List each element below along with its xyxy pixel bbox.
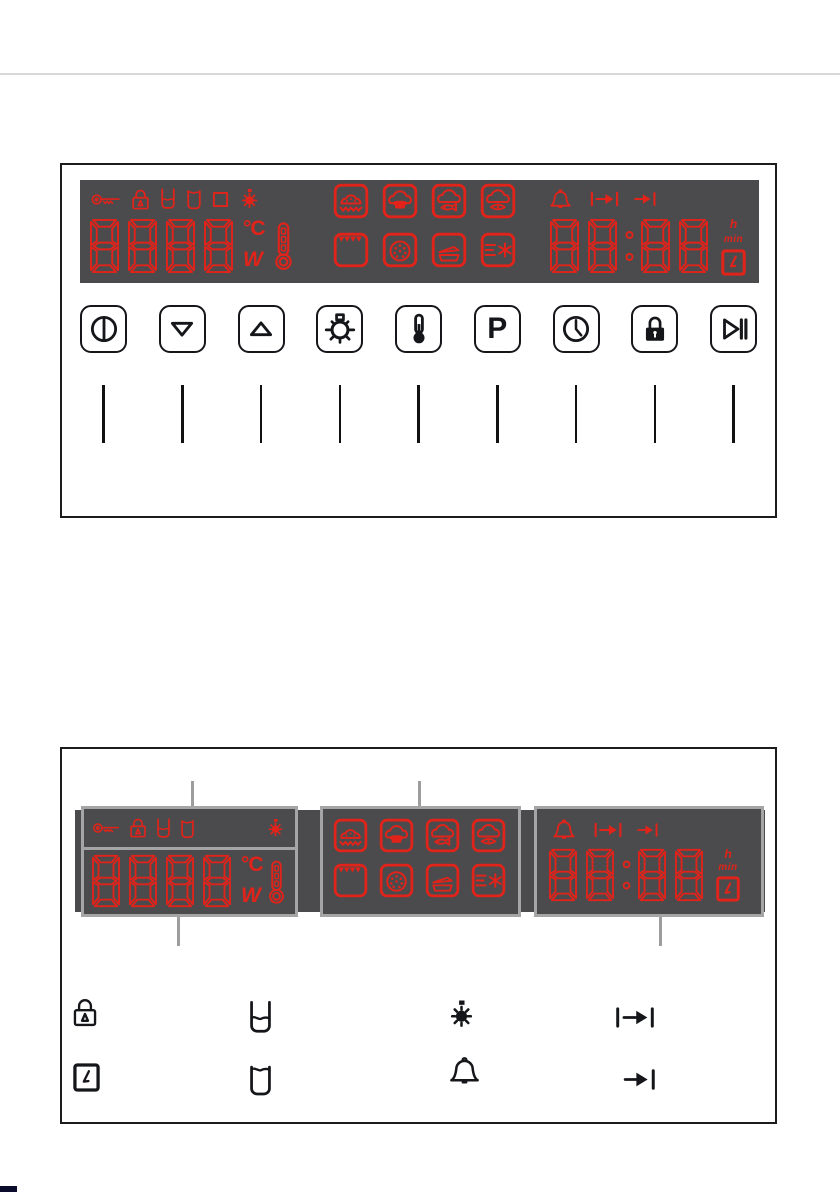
mode-icon-grill	[333, 232, 369, 268]
zone-box-time: h min	[534, 806, 764, 917]
control-button-row: P	[80, 305, 757, 353]
seven-segment-digit	[88, 218, 121, 274]
status-icon-row-left	[92, 813, 287, 843]
callout-line-top-left	[191, 781, 194, 807]
oven-light-icon	[266, 818, 285, 839]
temperature-units: °C W	[243, 218, 273, 270]
play-pause-icon	[717, 312, 751, 346]
status-icon-row-right	[548, 186, 756, 212]
triangle-up-icon	[244, 312, 278, 346]
seven-segment-digit	[201, 854, 233, 908]
mode-icon-pizza-fan	[379, 863, 414, 898]
seven-segment-digit	[164, 854, 196, 908]
mode-icon-pizza-fan	[382, 232, 418, 268]
time-digits: h min	[547, 848, 761, 902]
temperature-digits: °C W	[90, 854, 291, 910]
padlock-icon	[638, 312, 672, 346]
legend-container-full-icon	[248, 1063, 273, 1096]
page-corner-mark	[0, 1186, 17, 1192]
seven-segment-digit	[639, 218, 672, 274]
mode-icon-top-bottom-heat	[382, 183, 418, 219]
minute-label: min	[718, 863, 737, 873]
lamp-icon	[322, 311, 358, 347]
decrease-button	[159, 305, 206, 353]
legend-cooking-time-icon	[73, 1063, 100, 1092]
mode-icon-casserole	[425, 863, 460, 898]
temperature-digits: °C W	[88, 218, 310, 276]
legend-oven-light-icon	[447, 999, 476, 1031]
start-pause-button	[710, 305, 757, 353]
thermometer-button-icon	[402, 311, 436, 347]
zone-divider	[84, 847, 295, 850]
container-half-icon	[156, 818, 171, 839]
cooking-time-clock-icon	[716, 876, 740, 902]
hour-label: h	[730, 218, 737, 230]
thermometer-icon	[267, 854, 286, 910]
status-icon-row-left	[88, 186, 310, 212]
minute-minder-bell-icon	[551, 818, 577, 842]
on-off-button	[80, 305, 127, 353]
callout-line-bottom-left	[177, 917, 180, 946]
door-lock-icon	[131, 188, 150, 211]
zone-box-temperature: °C W	[81, 806, 298, 917]
oven-light-icon	[239, 188, 260, 211]
clock-icon	[559, 312, 593, 346]
temperature-units: °C W	[241, 854, 267, 906]
mode-icon-top-bottom-heat	[379, 818, 414, 853]
celsius-label: °C	[243, 218, 265, 239]
time-units: h min	[716, 848, 740, 902]
seven-segment-digit	[584, 848, 616, 902]
callout-line-top-middle	[418, 781, 421, 807]
key-icon	[90, 192, 121, 207]
seven-segment-digit	[548, 218, 581, 274]
program-button: P	[474, 305, 521, 353]
temperature-button	[395, 305, 442, 353]
status-icon-row-right	[551, 817, 761, 843]
hour-label: h	[724, 848, 731, 860]
legend-duration-icon	[614, 1005, 656, 1030]
mode-icon-defrost	[471, 863, 506, 898]
mode-icon-grid	[323, 809, 518, 898]
seven-segment-digit	[673, 848, 705, 902]
square-icon	[212, 191, 229, 208]
legend-door-lock-icon	[72, 997, 98, 1028]
seven-segment-digit	[90, 854, 122, 908]
display-zone-modes	[333, 183, 516, 268]
minute-label: min	[724, 235, 743, 245]
colon-separator	[621, 848, 632, 902]
seven-segment-digit	[202, 218, 235, 274]
legend-end-time-icon	[622, 1067, 657, 1092]
power-icon	[87, 312, 121, 346]
seven-segment-digit	[164, 218, 197, 274]
manual-page: { "page": { "kind": "oven control panel …	[0, 0, 840, 1192]
celsius-label: °C	[241, 854, 263, 875]
watt-label: W	[243, 249, 263, 270]
time-units: h min	[721, 218, 746, 276]
colon-separator	[624, 218, 635, 274]
mode-icon-casserole	[431, 232, 467, 268]
door-lock-icon	[129, 817, 147, 839]
container-half-icon	[160, 188, 176, 210]
program-letter: P	[487, 314, 507, 344]
duration-icon	[593, 821, 623, 839]
duration-icon	[589, 190, 620, 208]
display-zone-temperature: °C W	[88, 184, 310, 276]
mode-icon-fan-top-heat	[425, 818, 460, 853]
display-zone-time: h min	[548, 184, 756, 276]
figure-display-zones: °C W h	[60, 747, 777, 1124]
callout-line-bottom-right	[659, 917, 662, 946]
time-digits: h min	[548, 218, 756, 276]
watt-label: W	[241, 885, 261, 906]
figure-control-panel: °C W	[60, 163, 777, 518]
clock-button	[553, 305, 600, 353]
seven-segment-digit	[127, 854, 159, 908]
mode-icon-gentle-bake	[333, 818, 368, 853]
mode-icon-fan-bottom-heat	[471, 818, 506, 853]
minute-minder-bell-icon	[548, 188, 573, 211]
mode-icon-fan-bottom-heat	[480, 183, 516, 219]
seven-segment-digit	[547, 848, 579, 902]
thermometer-icon	[273, 216, 294, 276]
seven-segment-digit	[677, 218, 710, 274]
key-icon	[92, 821, 120, 835]
cooking-time-clock-icon	[721, 249, 746, 276]
seven-segment-digit	[126, 218, 159, 274]
zone-box-modes	[320, 806, 521, 917]
mode-icon-grill	[333, 863, 368, 898]
seven-segment-digit	[586, 218, 619, 274]
triangle-down-icon	[165, 312, 199, 346]
oven-light-button	[316, 305, 363, 353]
end-time-icon	[633, 190, 657, 208]
end-time-icon	[636, 821, 659, 839]
seven-segment-digit	[636, 848, 668, 902]
page-top-rule	[0, 73, 840, 75]
container-full-icon	[180, 818, 195, 839]
child-lock-button	[631, 305, 678, 353]
legend-minute-minder-icon	[447, 1055, 482, 1088]
led-display-panel: °C W	[80, 180, 759, 283]
legend-container-half-icon	[248, 1001, 273, 1034]
container-full-icon	[186, 188, 202, 210]
button-callout-ticks	[80, 385, 757, 443]
mode-icon-defrost	[480, 232, 516, 268]
mode-icon-gentle-bake	[333, 183, 369, 219]
increase-button	[238, 305, 285, 353]
mode-icon-fan-top-heat	[431, 183, 467, 219]
